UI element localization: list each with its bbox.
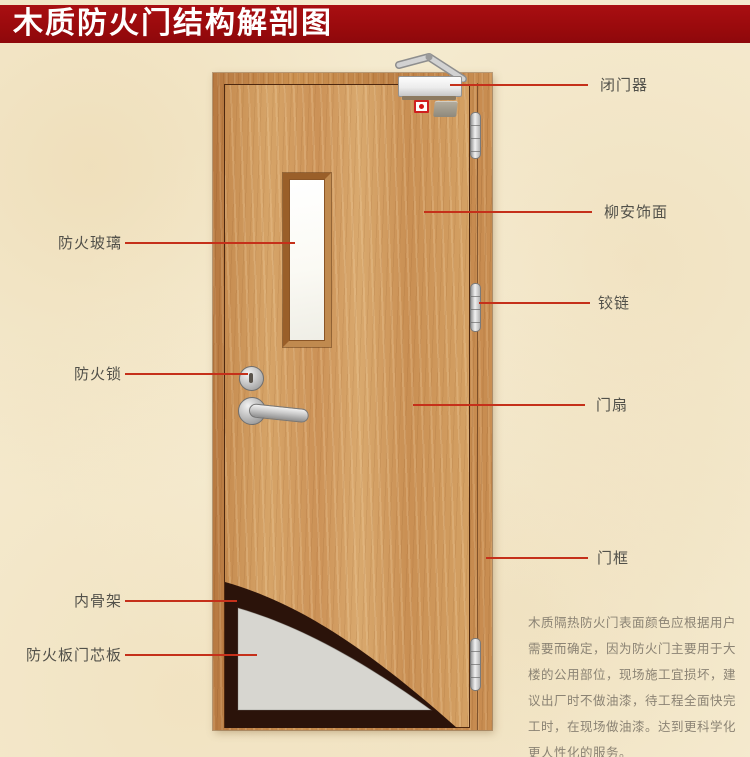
door-leaf-illustration [224,84,470,728]
hinge-middle [470,283,481,332]
fire-glass-pane [290,180,324,340]
leader-line-fire-core-board [125,654,257,656]
alarm-dot-icon [419,104,424,109]
fire-core-board-shape [238,608,431,710]
leader-line-inner-skeleton [125,600,237,602]
label-door-frame: 门框 [597,549,629,567]
label-hinge: 铰链 [598,294,630,312]
leader-line-lauan-veneer [424,211,592,213]
door-frame-illustration [213,73,492,730]
page-background: 木质防火门结构解剖图 [0,0,750,757]
leader-line-fire-lock [125,373,248,375]
leader-line-fire-glass [125,242,295,244]
hinge-top [470,112,481,159]
title-banner: 木质防火门结构解剖图 [0,5,750,43]
keyhole-icon [249,373,253,383]
nameplate-label [433,101,458,117]
label-lauan-veneer: 柳安饰面 [604,203,668,221]
label-fire-glass: 防火玻璃 [20,234,122,252]
hinge-bottom [470,638,481,691]
fire-glass-window [283,173,331,347]
leader-line-door-closer [450,84,588,86]
leader-line-hinge [479,302,590,304]
leader-line-door-leaf [413,404,585,406]
door-closer-body [398,76,462,97]
label-door-leaf: 门扇 [596,396,628,414]
fire-lock-cylinder [239,366,264,391]
label-inner-skeleton: 内骨架 [20,592,122,610]
closer-arm-pivot [426,54,433,61]
label-fire-core-board: 防火板门芯板 [4,646,122,664]
leader-line-door-frame [486,557,588,559]
door-frame-seam [477,83,478,730]
page-title: 木质防火门结构解剖图 [0,5,333,43]
door-closer-bracket [402,96,456,100]
description-text: 木质隔热防火门表面颜色应根据用户需要而确定，因为防火门主要用于大楼的公用部位，现… [528,610,736,757]
label-fire-lock: 防火锁 [20,365,122,383]
alarm-indicator [414,100,429,113]
cutaway-section [225,576,472,728]
label-door-closer: 闭门器 [600,76,648,94]
